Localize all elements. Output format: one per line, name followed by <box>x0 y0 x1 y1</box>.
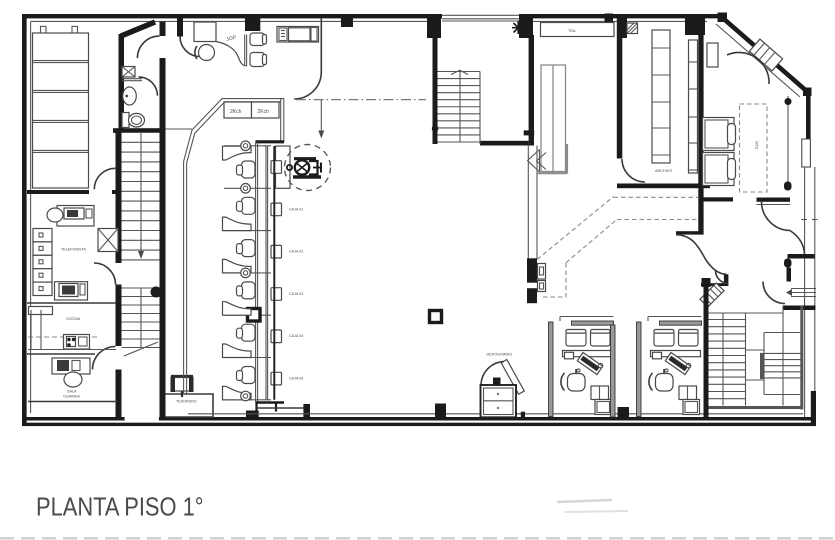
svg-text:TELEFONISTA: TELEFONISTA <box>61 247 86 251</box>
svg-text:TDA: TDA <box>568 29 576 33</box>
svg-text:CAJA 05: CAJA 05 <box>289 377 303 381</box>
svg-text:2Kch: 2Kch <box>230 109 242 115</box>
svg-text:CAJA 02: CAJA 02 <box>289 250 303 254</box>
svg-text:SALA: SALA <box>67 390 77 394</box>
svg-text:SITE: SITE <box>755 141 759 150</box>
svg-text:2Kch: 2Kch <box>258 109 270 115</box>
svg-text:ARCHIVO: ARCHIVO <box>655 169 672 173</box>
svg-text:CAJA 01: CAJA 01 <box>289 207 303 211</box>
svg-text:DEPOSITARIO: DEPOSITARIO <box>487 353 513 357</box>
svg-text:COCINA: COCINA <box>66 317 81 321</box>
svg-text:CAJA 03: CAJA 03 <box>289 292 303 296</box>
svg-text:TESORERO: TESORERO <box>176 400 197 404</box>
svg-text:PLANTA PISO 1°: PLANTA PISO 1° <box>36 494 204 522</box>
svg-text:GUARDIA: GUARDIA <box>63 395 80 399</box>
svg-text:CAJA 04: CAJA 04 <box>289 334 303 338</box>
